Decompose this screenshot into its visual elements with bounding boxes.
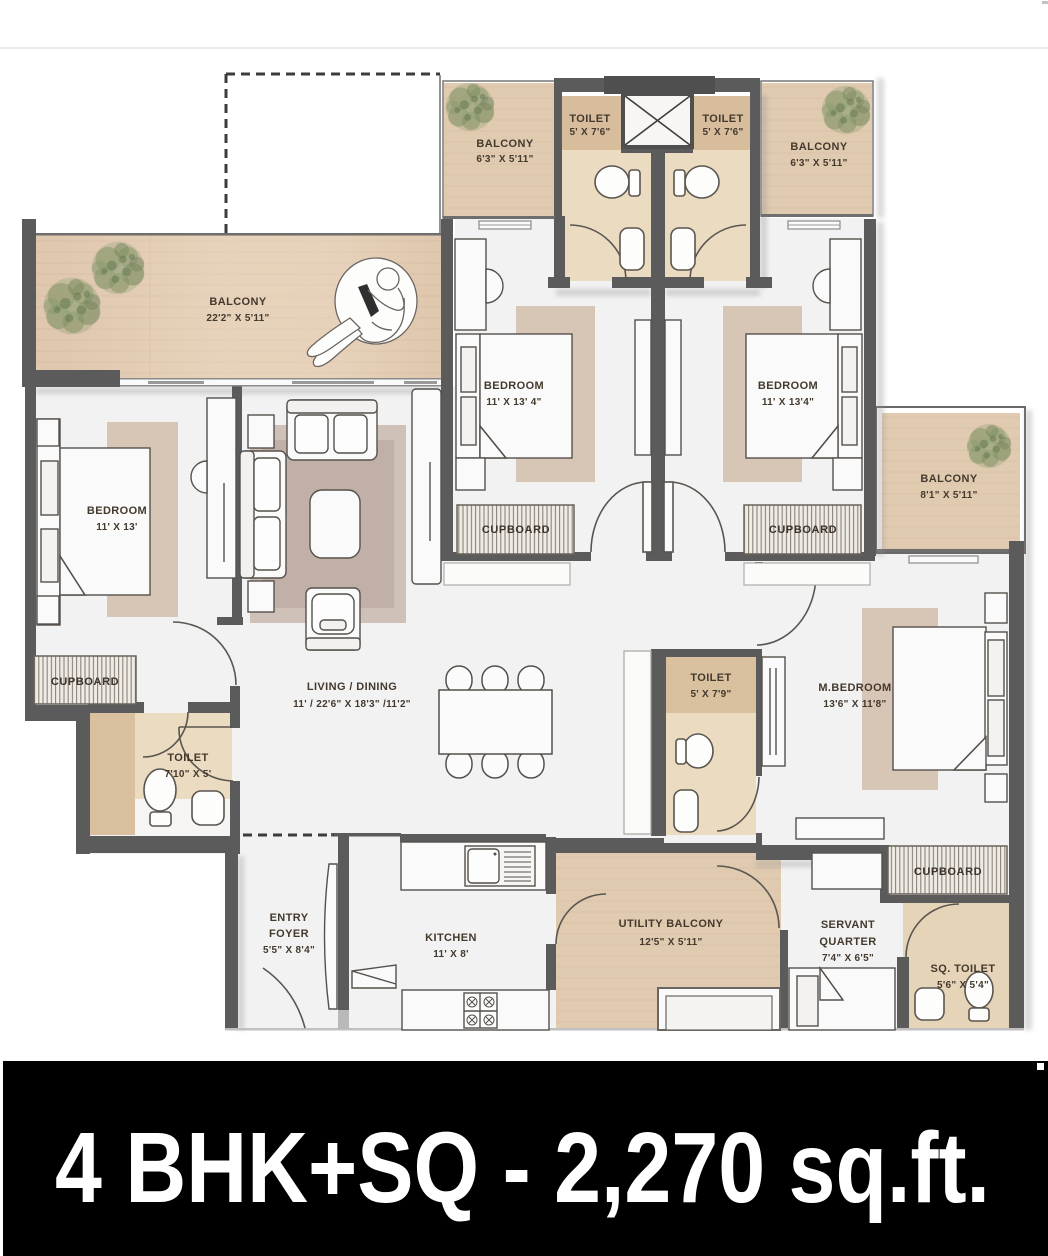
- svg-text:BALCONY: BALCONY: [476, 138, 533, 150]
- svg-text:TOILET: TOILET: [569, 113, 610, 125]
- svg-text:5' X 7'6": 5' X 7'6": [569, 127, 610, 138]
- svg-text:FOYER: FOYER: [269, 928, 309, 940]
- svg-text:BALCONY: BALCONY: [790, 141, 847, 153]
- svg-text:5'6" X 5'4": 5'6" X 5'4": [937, 980, 989, 991]
- svg-text:M.BEDROOM: M.BEDROOM: [818, 682, 891, 694]
- svg-text:TOILET: TOILET: [690, 672, 731, 684]
- svg-text:CUPBOARD: CUPBOARD: [482, 524, 550, 536]
- svg-text:11' X 13' 4": 11' X 13' 4": [486, 397, 541, 408]
- svg-text:5' X 7'9": 5' X 7'9": [690, 689, 731, 700]
- svg-text:CUPBOARD: CUPBOARD: [914, 866, 982, 878]
- svg-text:TOILET: TOILET: [702, 113, 743, 125]
- svg-text:5'5" X 8'4": 5'5" X 8'4": [263, 945, 315, 956]
- svg-text:TOILET: TOILET: [167, 752, 208, 764]
- svg-text:CUPBOARD: CUPBOARD: [51, 676, 119, 688]
- svg-text:SQ. TOILET: SQ. TOILET: [931, 963, 996, 975]
- svg-text:BALCONY: BALCONY: [920, 473, 977, 485]
- svg-text:6'3" X 5'11": 6'3" X 5'11": [790, 158, 847, 169]
- svg-text:QUARTER: QUARTER: [819, 936, 876, 948]
- svg-text:BEDROOM: BEDROOM: [484, 380, 544, 392]
- svg-text:BALCONY: BALCONY: [209, 296, 266, 308]
- svg-text:KITCHEN: KITCHEN: [425, 932, 477, 944]
- svg-text:11' X 13': 11' X 13': [96, 522, 137, 533]
- svg-text:4 BHK+SQ - 2,270 sq.ft.: 4 BHK+SQ - 2,270 sq.ft.: [55, 1112, 990, 1224]
- svg-text:13'6" X 11'8": 13'6" X 11'8": [823, 699, 886, 710]
- svg-text:11' X 8': 11' X 8': [433, 949, 469, 960]
- svg-text:8'1" X 5'11": 8'1" X 5'11": [920, 490, 977, 501]
- svg-text:UTILITY BALCONY: UTILITY BALCONY: [619, 918, 724, 930]
- svg-text:5' X 7'6": 5' X 7'6": [702, 127, 743, 138]
- svg-text:CUPBOARD: CUPBOARD: [769, 524, 837, 536]
- svg-text:ENTRY: ENTRY: [270, 912, 309, 924]
- svg-text:BEDROOM: BEDROOM: [87, 505, 147, 517]
- svg-text:7'4" X 6'5": 7'4" X 6'5": [822, 953, 874, 964]
- svg-text:6'3" X 5'11": 6'3" X 5'11": [476, 154, 533, 165]
- svg-text:11' X 13'4": 11' X 13'4": [762, 397, 814, 408]
- svg-text:SERVANT: SERVANT: [821, 919, 875, 931]
- svg-text:BEDROOM: BEDROOM: [758, 380, 818, 392]
- svg-text:11' / 22'6" X 18'3" /11'2": 11' / 22'6" X 18'3" /11'2": [293, 699, 411, 710]
- svg-text:7'10" X 5': 7'10" X 5': [165, 769, 212, 780]
- svg-text:LIVING / DINING: LIVING / DINING: [307, 681, 397, 693]
- svg-text:22'2" X 5'11": 22'2" X 5'11": [206, 313, 269, 324]
- svg-text:12'5" X 5'11": 12'5" X 5'11": [639, 937, 702, 948]
